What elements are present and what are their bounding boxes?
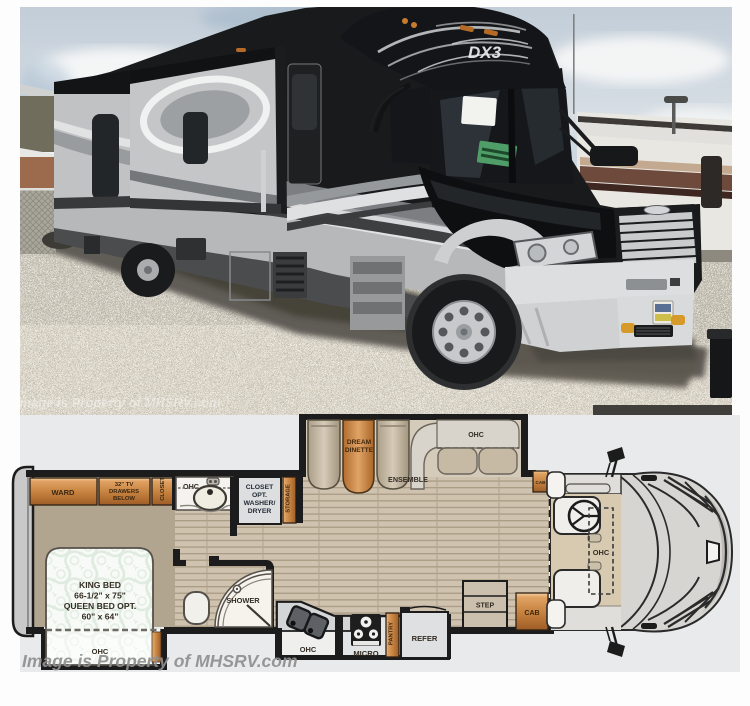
svg-text:MICRO: MICRO <box>353 649 378 658</box>
svg-text:STORAGE: STORAGE <box>286 484 292 513</box>
svg-text:CAB: CAB <box>524 610 539 617</box>
svg-text:REFER: REFER <box>412 634 438 643</box>
svg-text:DRYER: DRYER <box>248 508 272 515</box>
svg-text:SHOWER: SHOWER <box>226 596 260 605</box>
svg-text:66-1/2" x 75": 66-1/2" x 75" <box>74 591 126 601</box>
svg-text:QUEEN BED OPT.: QUEEN BED OPT. <box>64 601 137 611</box>
svg-text:Image is Property of MHSRV.com: Image is Property of MHSRV.com <box>22 651 298 671</box>
svg-text:DRAWERS: DRAWERS <box>109 489 139 495</box>
svg-text:KING BED: KING BED <box>79 580 121 590</box>
svg-text:OHC: OHC <box>593 548 610 557</box>
svg-text:DINETTE: DINETTE <box>345 447 374 454</box>
svg-text:ENSEMBLE: ENSEMBLE <box>388 475 428 484</box>
svg-text:CAB: CAB <box>536 480 547 485</box>
svg-text:DX3: DX3 <box>468 43 502 62</box>
svg-text:32" TV: 32" TV <box>115 482 134 488</box>
svg-text:OHC: OHC <box>183 482 199 491</box>
svg-text:OHC: OHC <box>300 645 317 654</box>
svg-text:CLOSET: CLOSET <box>160 477 166 501</box>
svg-text:WASHER/: WASHER/ <box>244 500 276 507</box>
svg-text:OPT.: OPT. <box>252 492 267 499</box>
svg-text:WARD: WARD <box>52 488 75 497</box>
svg-text:BELOW: BELOW <box>113 496 135 502</box>
svg-text:60" x 64": 60" x 64" <box>82 612 119 622</box>
svg-text:DREAM: DREAM <box>347 439 372 446</box>
svg-text:STEP: STEP <box>476 603 495 610</box>
svg-text:OHC: OHC <box>468 432 484 439</box>
svg-text:CLOSET: CLOSET <box>246 484 274 491</box>
svg-text:PANTRY: PANTRY <box>389 622 395 645</box>
svg-text:Image is Property of MHSRV.com: Image is Property of MHSRV.com <box>16 395 221 410</box>
